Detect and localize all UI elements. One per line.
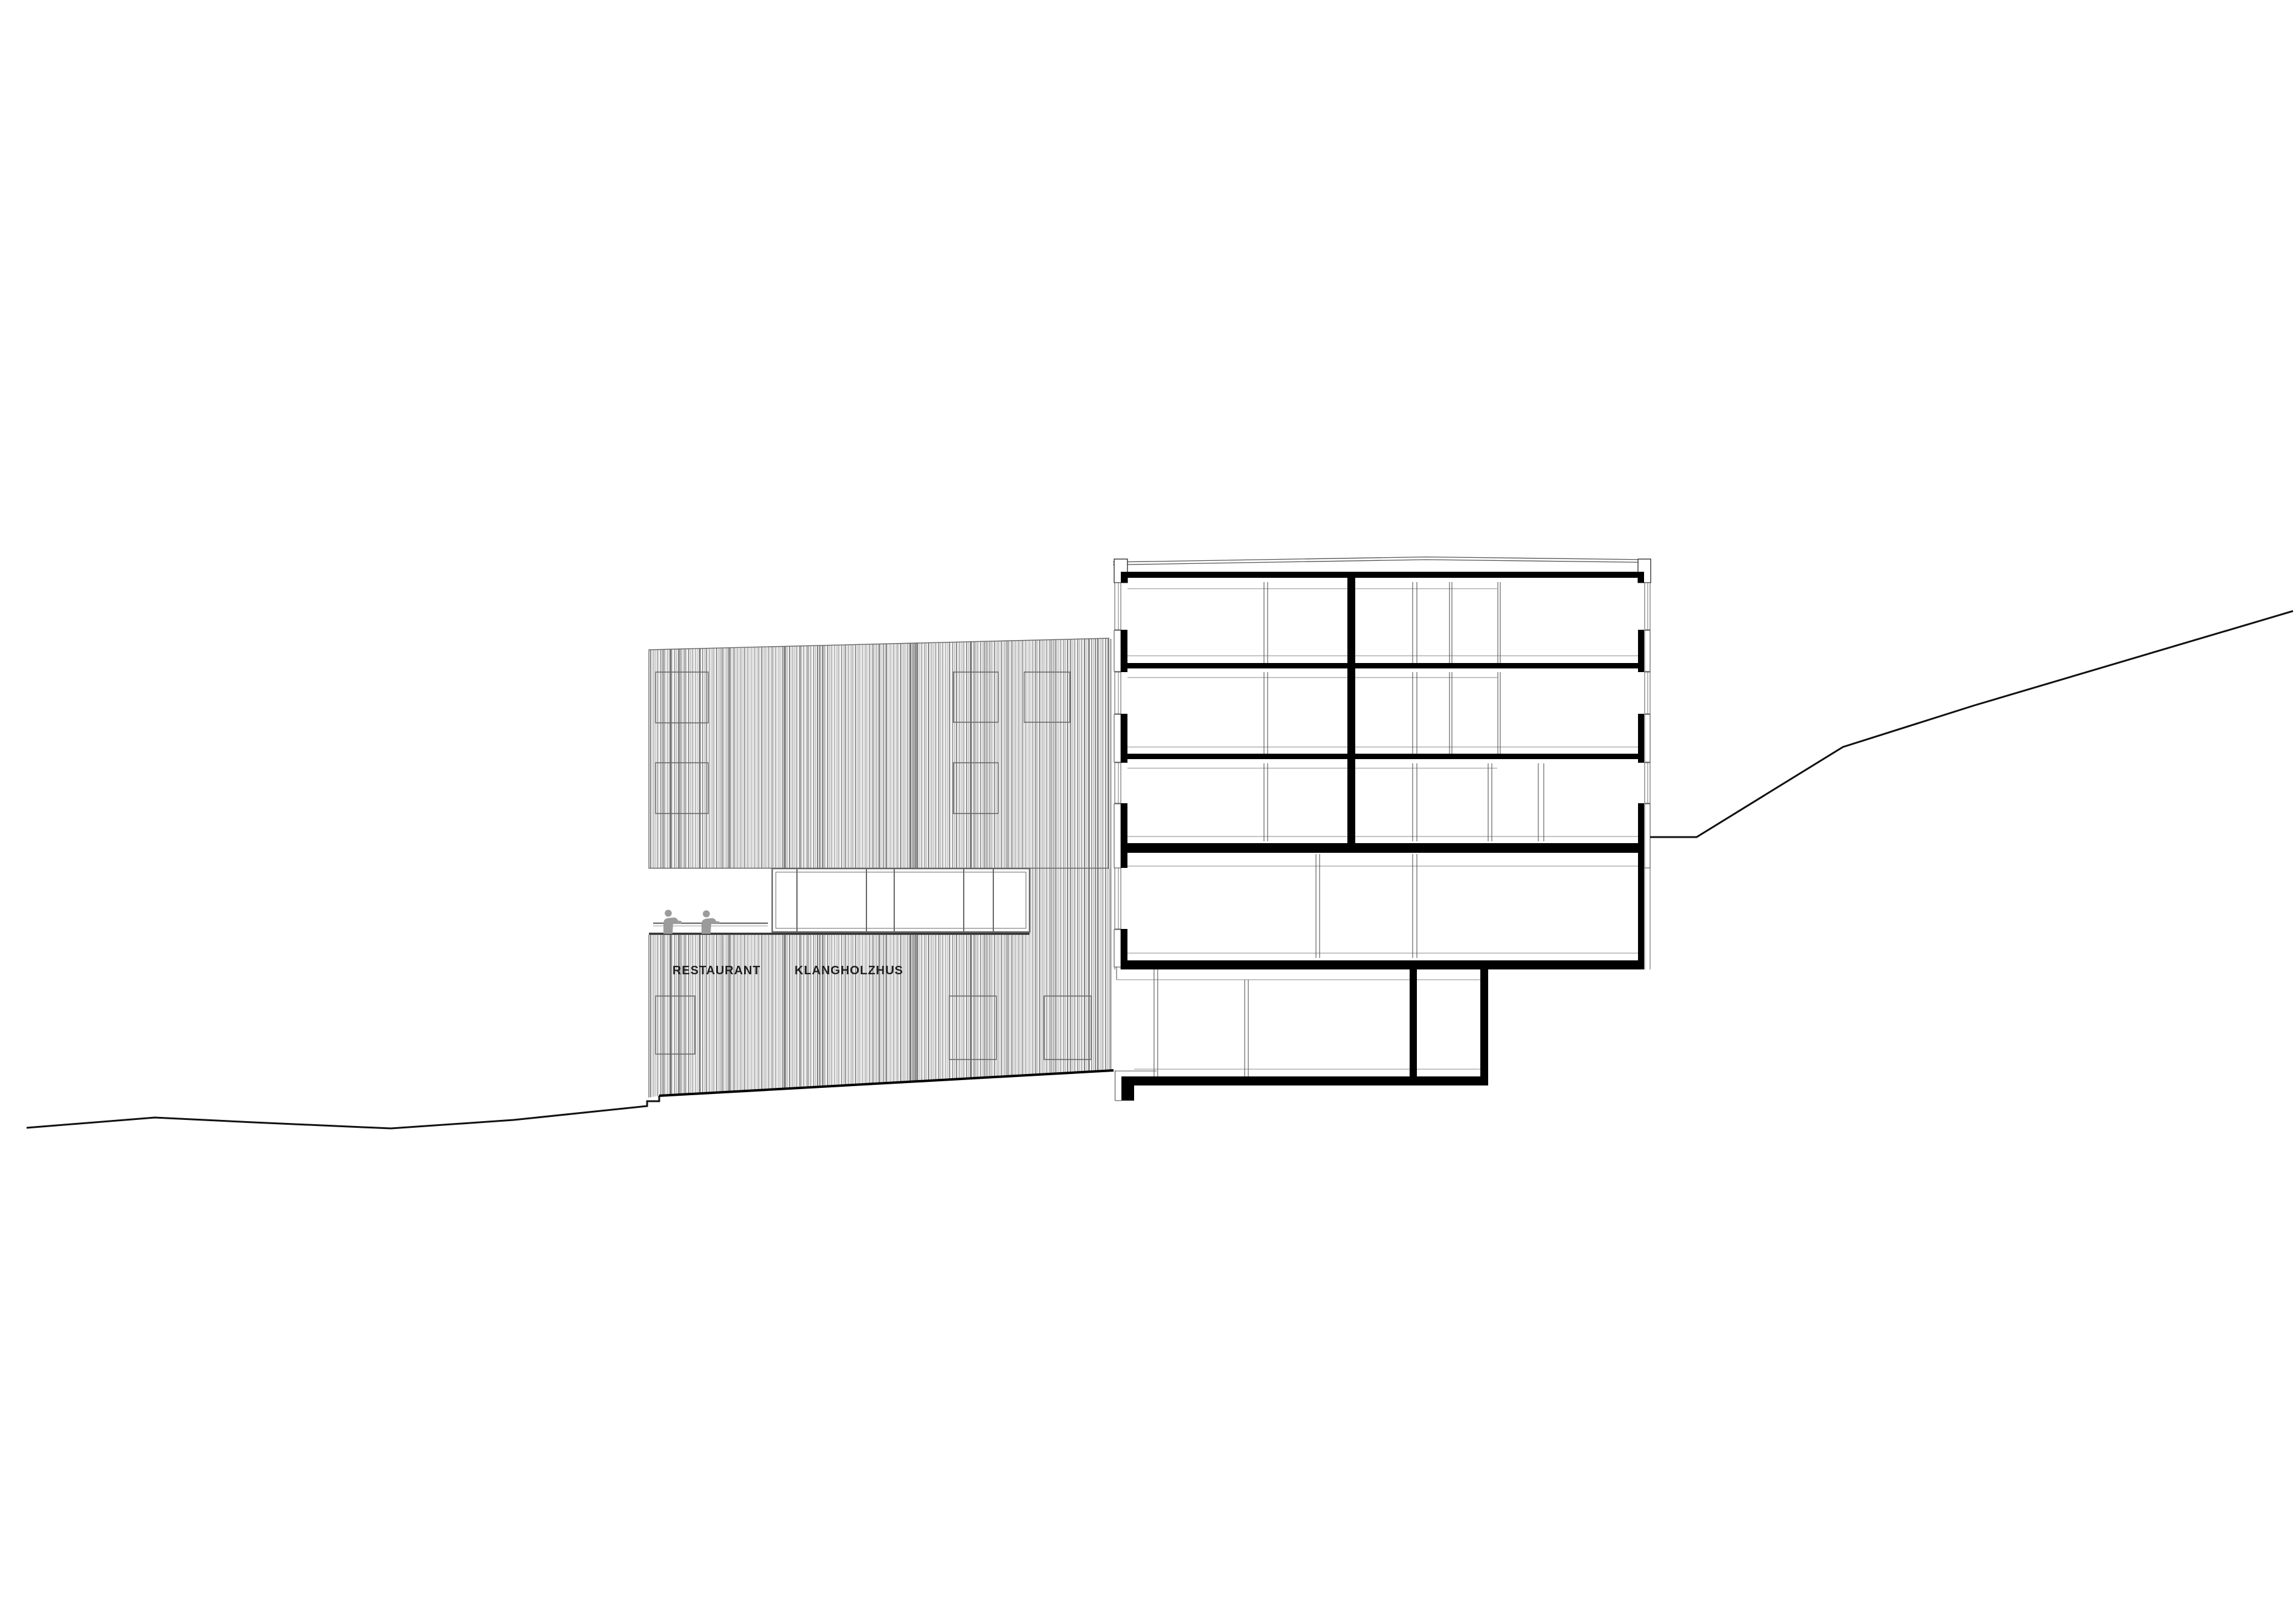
svg-text:KLANGHOLZHUS: KLANGHOLZHUS <box>795 964 903 977</box>
svg-text:RESTAURANT: RESTAURANT <box>672 964 760 977</box>
